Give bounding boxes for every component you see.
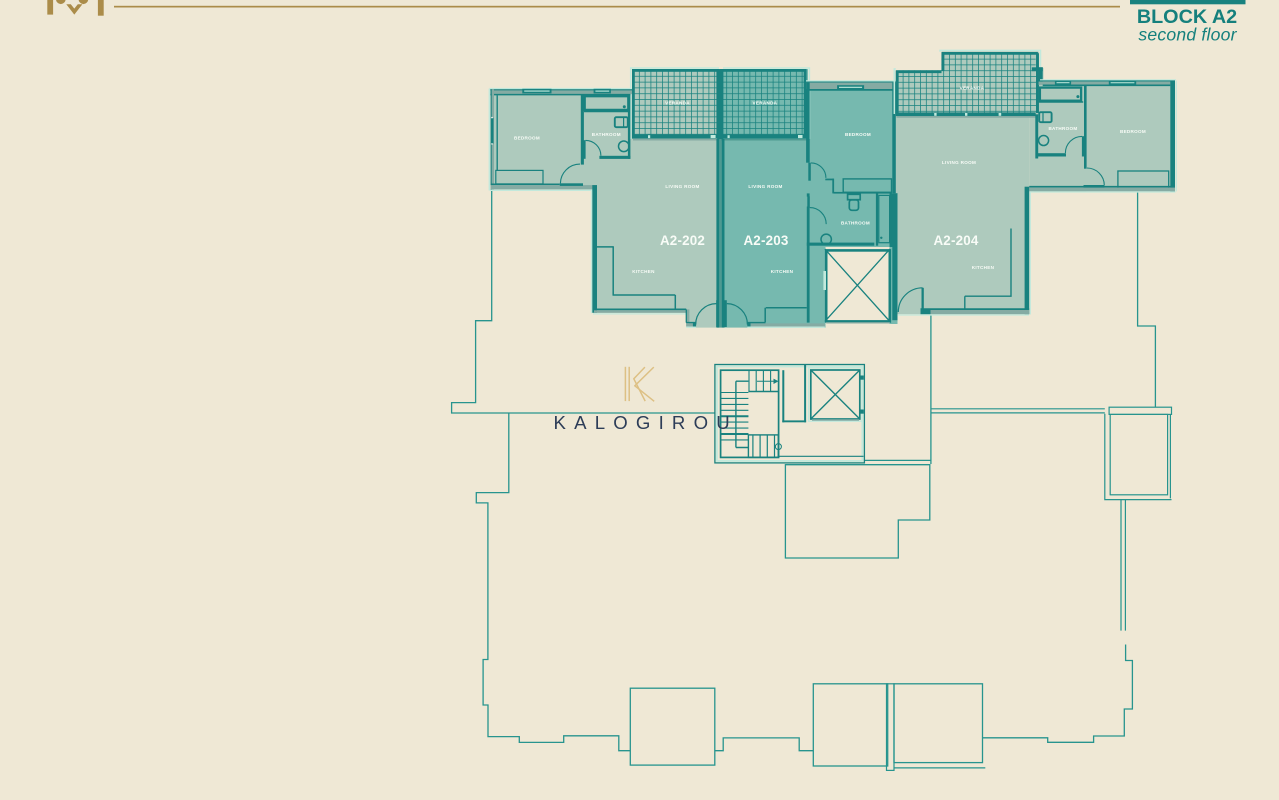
svg-text:VERANDA: VERANDA	[665, 101, 690, 106]
svg-text:second floor: second floor	[1138, 25, 1237, 45]
svg-text:KITCHEN: KITCHEN	[632, 269, 655, 274]
svg-text:BATHROOM: BATHROOM	[1048, 126, 1077, 131]
svg-text:BATHROOM: BATHROOM	[841, 221, 870, 226]
svg-text:LIVING ROOM: LIVING ROOM	[665, 184, 699, 189]
svg-text:KITCHEN: KITCHEN	[771, 269, 794, 274]
svg-text:VERANDA: VERANDA	[752, 101, 777, 106]
svg-text:LIVING ROOM: LIVING ROOM	[748, 184, 782, 189]
svg-text:LIVING ROOM: LIVING ROOM	[942, 160, 976, 165]
svg-text:A2-203: A2-203	[743, 233, 788, 248]
svg-text:BEDROOM: BEDROOM	[514, 135, 540, 140]
svg-text:KITCHEN: KITCHEN	[972, 265, 995, 270]
svg-text:A2-202: A2-202	[660, 233, 705, 248]
svg-text:BATHROOM: BATHROOM	[592, 132, 621, 137]
svg-text:KALOGIROU: KALOGIROU	[554, 412, 738, 433]
svg-text:BEDROOM: BEDROOM	[845, 132, 871, 137]
svg-text:VERANDA: VERANDA	[960, 86, 985, 91]
svg-text:BEDROOM: BEDROOM	[1120, 129, 1146, 134]
svg-text:A2-204: A2-204	[933, 233, 978, 248]
